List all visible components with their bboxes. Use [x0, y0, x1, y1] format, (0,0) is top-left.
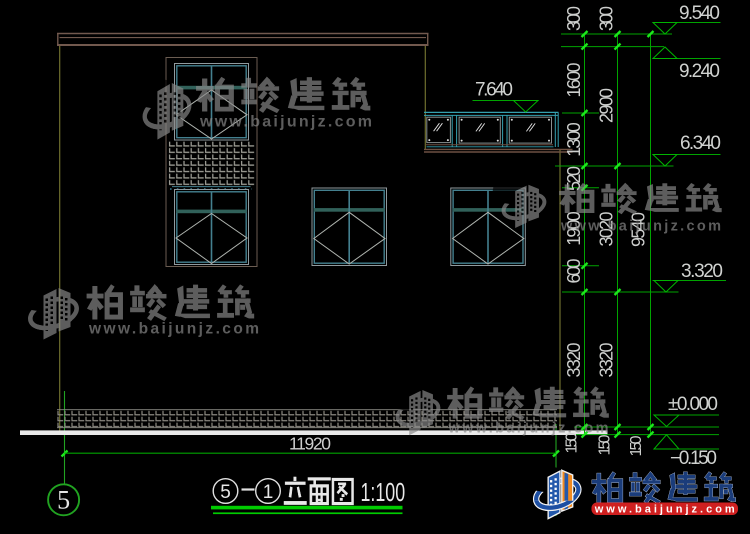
svg-text:3.320: 3.320 — [681, 261, 723, 282]
svg-text:600: 600 — [564, 259, 584, 284]
svg-text:300: 300 — [564, 6, 584, 31]
svg-text:300: 300 — [596, 6, 616, 31]
svg-text:150: 150 — [597, 434, 614, 455]
svg-text:±0.000: ±0.000 — [668, 394, 718, 415]
svg-text:11920: 11920 — [289, 433, 331, 453]
svg-text:5: 5 — [220, 482, 231, 503]
svg-text:9.540: 9.540 — [679, 3, 720, 24]
svg-text:1: 1 — [263, 482, 274, 503]
svg-text:9.240: 9.240 — [679, 61, 720, 82]
svg-text:5: 5 — [57, 486, 70, 515]
svg-text:1300: 1300 — [564, 122, 584, 157]
svg-text:7.640: 7.640 — [475, 80, 513, 101]
svg-text:3320: 3320 — [596, 343, 616, 378]
svg-text:150: 150 — [628, 435, 645, 456]
svg-text:1600: 1600 — [564, 63, 584, 98]
svg-text:−0.150: −0.150 — [670, 448, 717, 469]
svg-text:6.340: 6.340 — [680, 133, 721, 154]
svg-text:3320: 3320 — [564, 343, 584, 378]
svg-text:1:100: 1:100 — [361, 478, 406, 507]
svg-text:2900: 2900 — [596, 88, 616, 123]
